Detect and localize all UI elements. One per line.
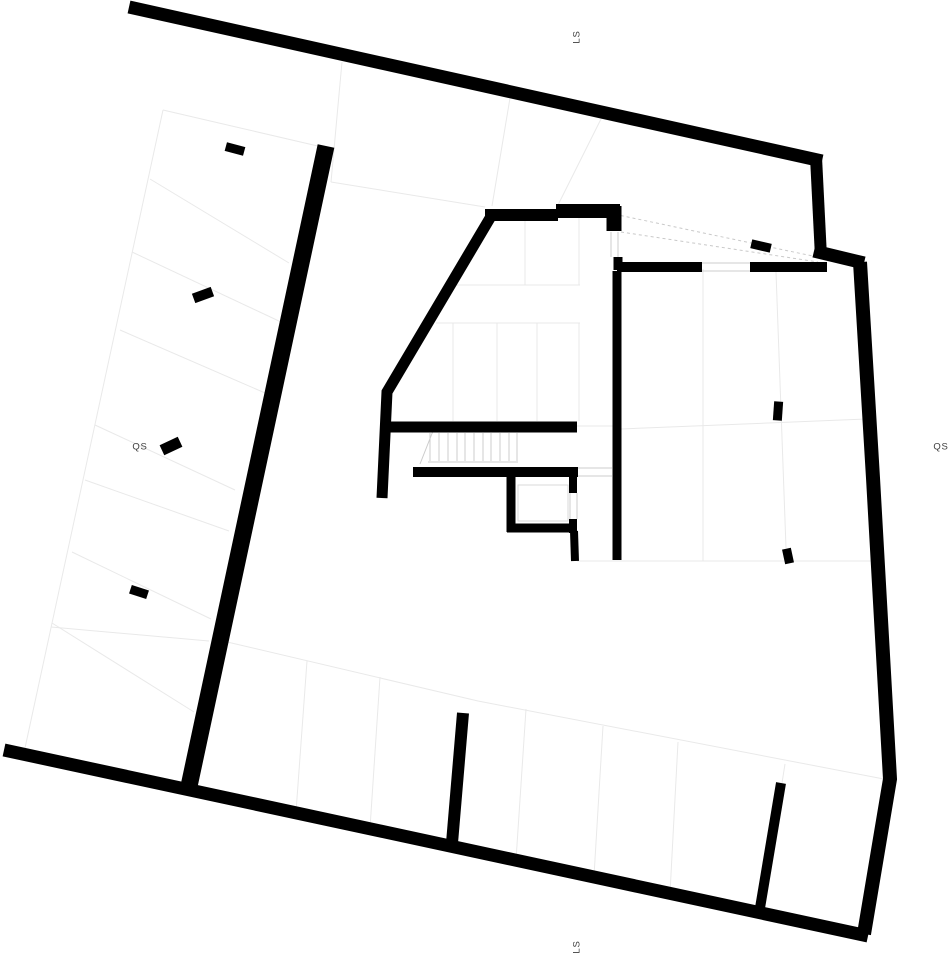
east-room-line-1 — [621, 419, 866, 429]
parking-divider-6 — [782, 764, 785, 783]
stair-break-line — [420, 431, 433, 464]
stall-line-5 — [95, 425, 235, 490]
elevator-cab — [518, 485, 568, 521]
column-marker — [782, 548, 794, 565]
courtyard-line-d — [558, 117, 602, 205]
boundary-north — [129, 7, 822, 161]
floor-plan-page: LSQSQSLS — [0, 0, 952, 957]
garage-spine-wall — [188, 146, 326, 791]
parking-wall-b — [760, 783, 781, 908]
stall-line-3 — [132, 252, 281, 322]
column-marker — [192, 287, 214, 303]
parking-divider-3 — [516, 709, 526, 860]
courtyard-line-a — [331, 62, 342, 182]
section-label-qs-east: QS — [933, 442, 948, 453]
parking-divider-2 — [370, 677, 380, 828]
boundary-step-east — [816, 157, 821, 257]
walls — [4, 7, 890, 936]
west-diagonal-wall — [382, 213, 493, 498]
column-marker — [129, 585, 149, 599]
section-label-ls-north: LS — [572, 30, 583, 43]
stall-line-8 — [52, 623, 194, 712]
boundary-south — [4, 750, 868, 936]
column-marker — [160, 437, 183, 455]
parking-divider-4 — [594, 726, 603, 876]
stall-line-7 — [72, 552, 211, 619]
courtyard-line-c — [492, 98, 510, 206]
section-label-ls-south: LS — [572, 940, 583, 953]
parking-wall-a — [452, 713, 463, 843]
column-marker — [773, 401, 783, 421]
column-marker — [750, 239, 772, 252]
stall-line-2 — [150, 179, 289, 263]
section-label-qs-west: QS — [132, 442, 147, 453]
column-marker — [225, 142, 246, 156]
ramp-lines — [609, 213, 822, 262]
parking-divider-1 — [296, 661, 307, 812]
stall-line-1 — [163, 110, 322, 147]
floor-plan-canvas: LSQSQSLS — [0, 0, 952, 957]
ramp-edge-b — [621, 232, 818, 262]
below-elevator-wall — [574, 531, 575, 561]
stall-line-9 — [51, 627, 209, 641]
boundary-east — [860, 262, 890, 934]
elevator-cab-outline — [518, 485, 568, 521]
boundary-step-south — [814, 251, 864, 263]
parking-front-line — [223, 641, 889, 780]
stall-line-4 — [120, 330, 272, 396]
boundary-west-line — [25, 110, 163, 748]
parking-divider-5 — [670, 742, 678, 893]
courtyard-line-b — [331, 182, 485, 207]
stall-line-6 — [85, 480, 229, 531]
